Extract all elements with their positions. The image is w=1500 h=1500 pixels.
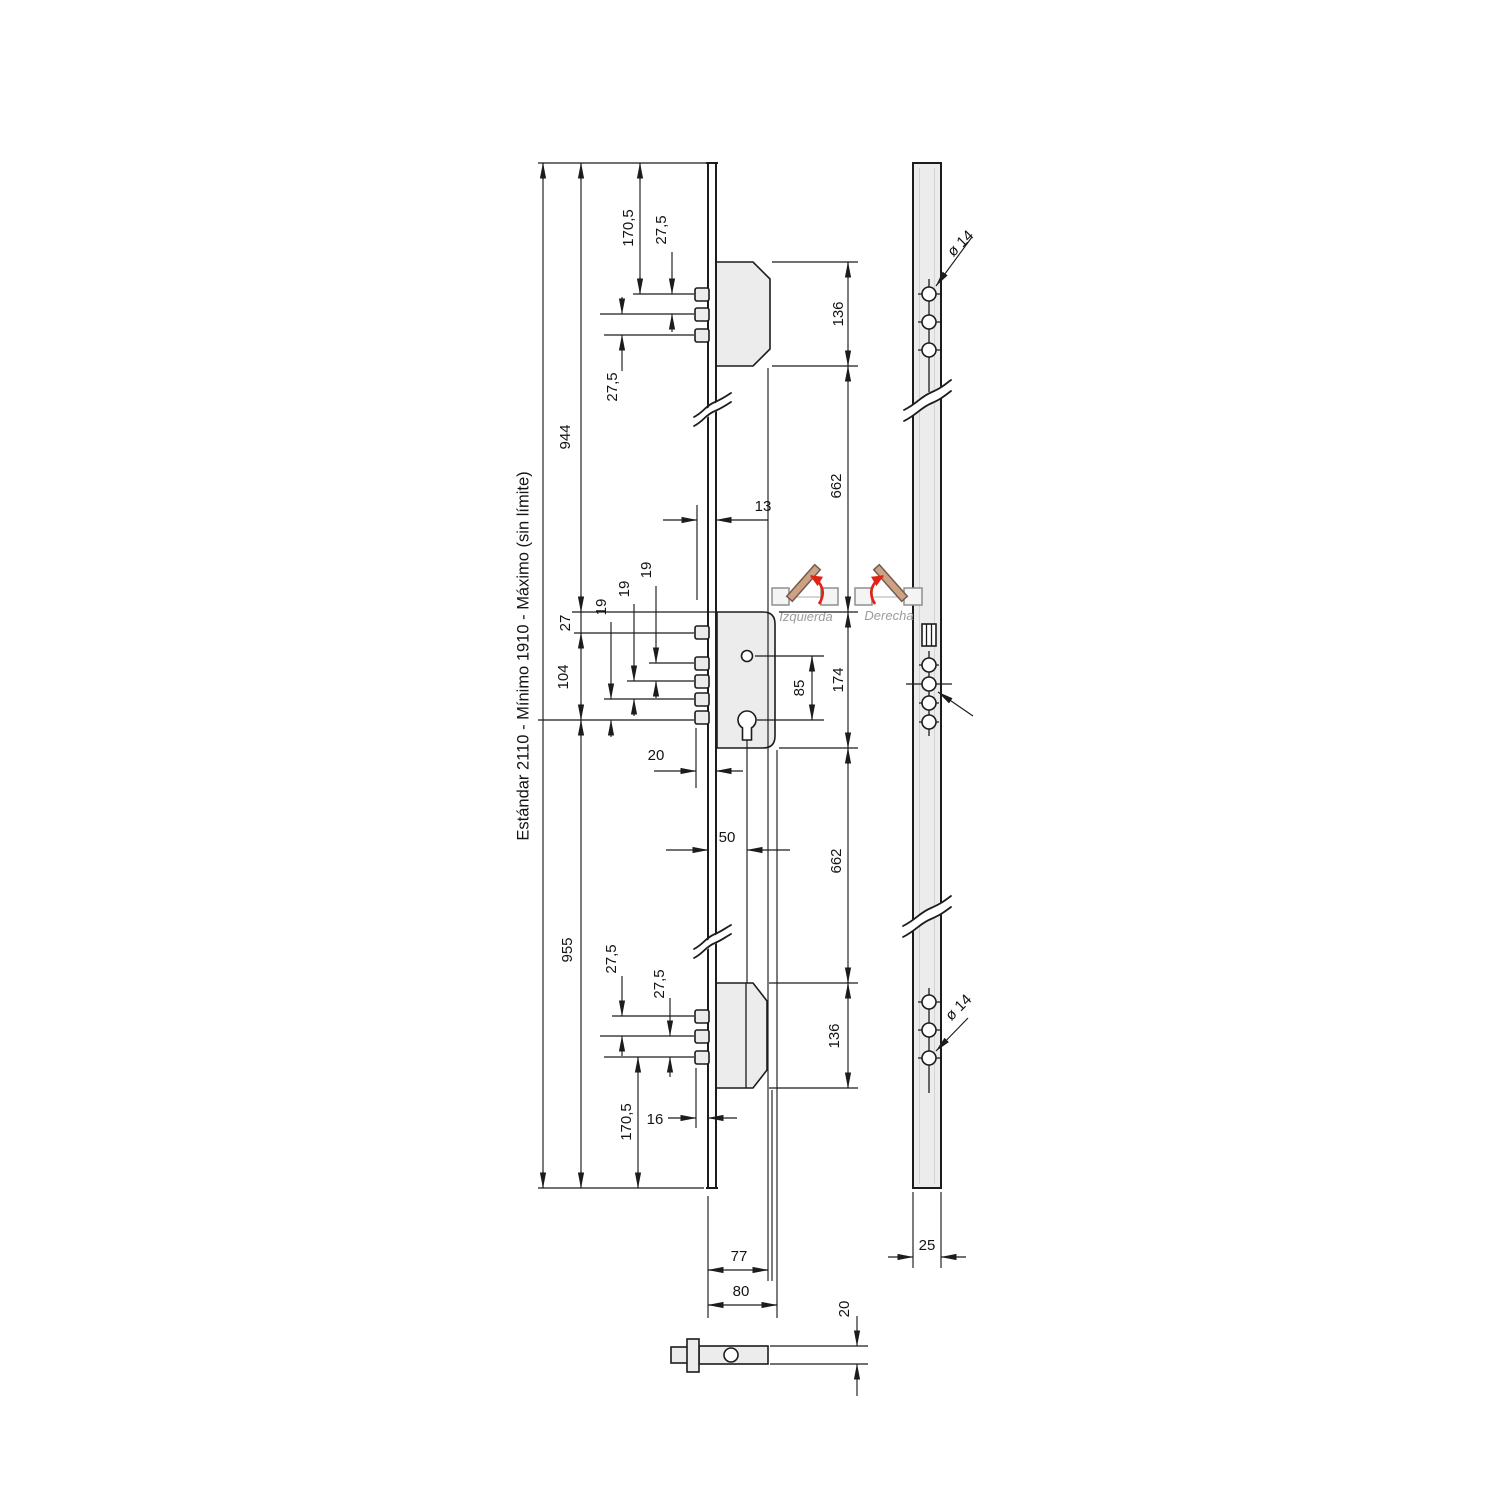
dia-14-top-label: ø 14 <box>944 227 977 260</box>
bottom-bolts <box>695 1010 709 1064</box>
top-latch-box <box>716 262 770 366</box>
dim-77-label: 77 <box>731 1248 748 1265</box>
dim-104-label: 104 <box>555 664 572 689</box>
handle-rosette-icon <box>855 588 872 605</box>
spindle-part <box>671 1339 768 1372</box>
bottom-deadbolt-box <box>716 983 767 1088</box>
handing-icons: Izquierda Derecha <box>772 570 922 624</box>
dim-662-bottom-label: 662 <box>828 848 845 873</box>
technical-drawing-page: Izquierda Derecha <box>0 0 1500 1500</box>
spindle-head <box>671 1347 688 1363</box>
dim-80-label: 80 <box>733 1283 750 1300</box>
dim-20-throw-label: 20 <box>648 747 665 764</box>
dim-27-5-top-a-label: 27,5 <box>653 215 670 244</box>
dim-27-label: 27 <box>557 615 574 632</box>
rotation-arrow-right-icon <box>871 576 883 604</box>
follower-slot <box>922 624 936 646</box>
dim-25-label: 25 <box>919 1237 936 1254</box>
dim-170-5-bottom-label: 170,5 <box>618 1103 635 1141</box>
spindle-hole-icon <box>742 651 753 662</box>
edge-view <box>903 163 973 1188</box>
spec-note-label: Estándar 2110 - Mínimo 1910 - Máximo (si… <box>514 471 532 840</box>
dim-170-5-top-label: 170,5 <box>620 209 637 247</box>
dim-13-label: 13 <box>755 498 772 515</box>
spindle-flange <box>687 1339 699 1372</box>
dim-50-label: 50 <box>719 829 736 846</box>
dim-19-c-label: 19 <box>593 599 610 616</box>
dim-662-top-label: 662 <box>828 473 845 498</box>
handing-left-label: Izquierda <box>779 609 832 624</box>
dim-136-bottom-label: 136 <box>826 1023 843 1048</box>
dim-19-a-label: 19 <box>638 562 655 579</box>
spindle-rod-hole <box>724 1348 738 1362</box>
multipoint-lock-diagram: Izquierda Derecha <box>0 0 1500 1500</box>
dim-944-label: 944 <box>557 424 574 449</box>
dim-20-spindle-label: 20 <box>836 1301 853 1318</box>
dim-27-5-bottom-a-label: 27,5 <box>603 944 620 973</box>
dia-14-bottom-label: ø 14 <box>942 991 975 1024</box>
front-view <box>694 163 775 1188</box>
dim-136-top-label: 136 <box>830 301 847 326</box>
dim-16-label: 16 <box>647 1111 664 1128</box>
dim-85-label: 85 <box>791 680 808 697</box>
top-bolts <box>695 288 709 342</box>
handing-right-label: Derecha <box>864 608 913 623</box>
dim-27-5-top-b-label: 27,5 <box>604 372 621 401</box>
dim-19-b-label: 19 <box>616 581 633 598</box>
leader-middle-hole <box>938 692 973 716</box>
dim-955-label: 955 <box>559 937 576 962</box>
dim-27-5-bottom-b-label: 27,5 <box>651 969 668 998</box>
dim-174-label: 174 <box>830 667 847 692</box>
case-bolts <box>695 626 709 724</box>
